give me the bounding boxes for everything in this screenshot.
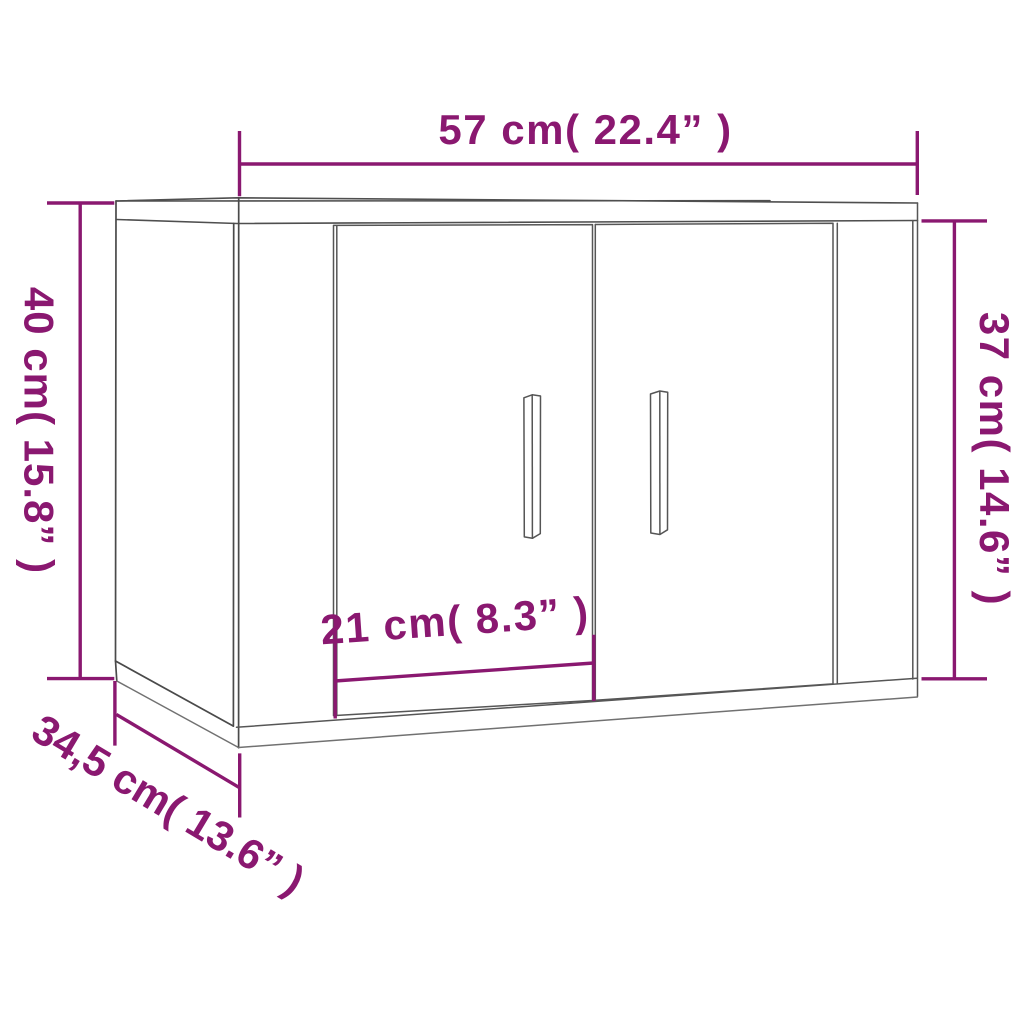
svg-text:37 cm( 14.6” ): 37 cm( 14.6” ) xyxy=(971,312,1018,606)
svg-text:57 cm( 22.4” ): 57 cm( 22.4” ) xyxy=(438,106,732,153)
svg-text:40 cm( 15.8” ): 40 cm( 15.8” ) xyxy=(16,287,63,574)
